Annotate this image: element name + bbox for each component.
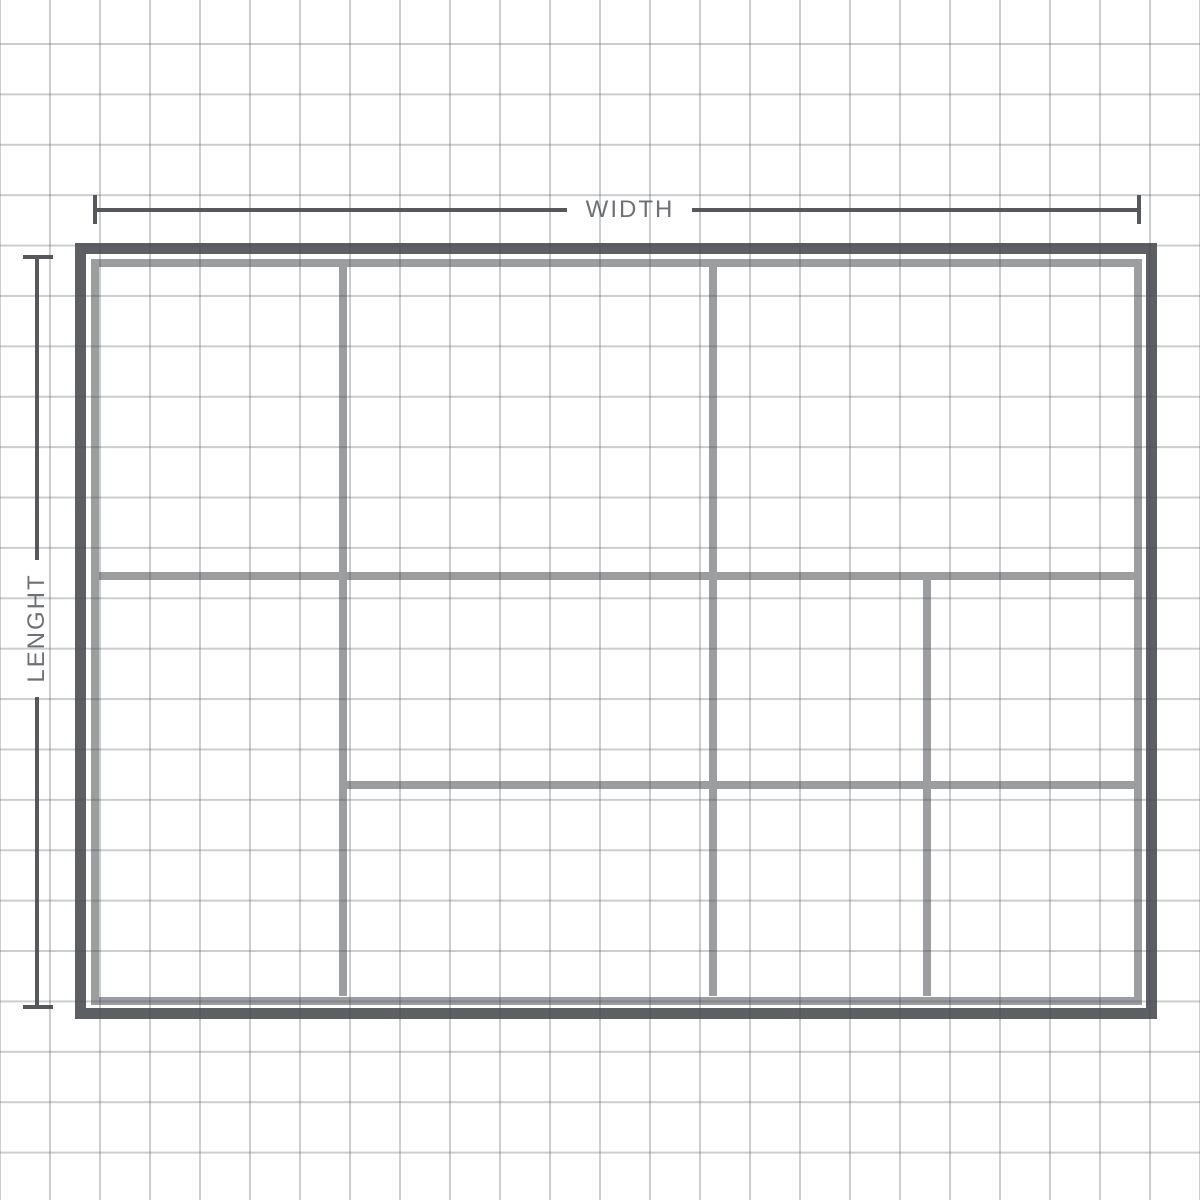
width-dimension-tick-right	[1137, 195, 1141, 224]
length-dimension-line-top	[35, 257, 39, 560]
dimension-diagram: WIDTH LENGHT	[0, 0, 1200, 1200]
width-dimension-line-left	[96, 208, 567, 212]
divider-horizontal-lower	[339, 781, 1134, 789]
width-label: WIDTH	[567, 197, 693, 223]
inner-wall	[91, 259, 1142, 1005]
divider-vertical-left	[339, 267, 347, 996]
width-dimension-line-right	[692, 208, 1138, 212]
divider-vertical-middle	[709, 267, 717, 996]
length-label: LENGHT	[24, 573, 50, 682]
length-dimension-line-bottom	[35, 697, 39, 1007]
divider-horizontal-upper	[99, 572, 1134, 580]
length-dimension-tick-bottom	[23, 1005, 53, 1009]
